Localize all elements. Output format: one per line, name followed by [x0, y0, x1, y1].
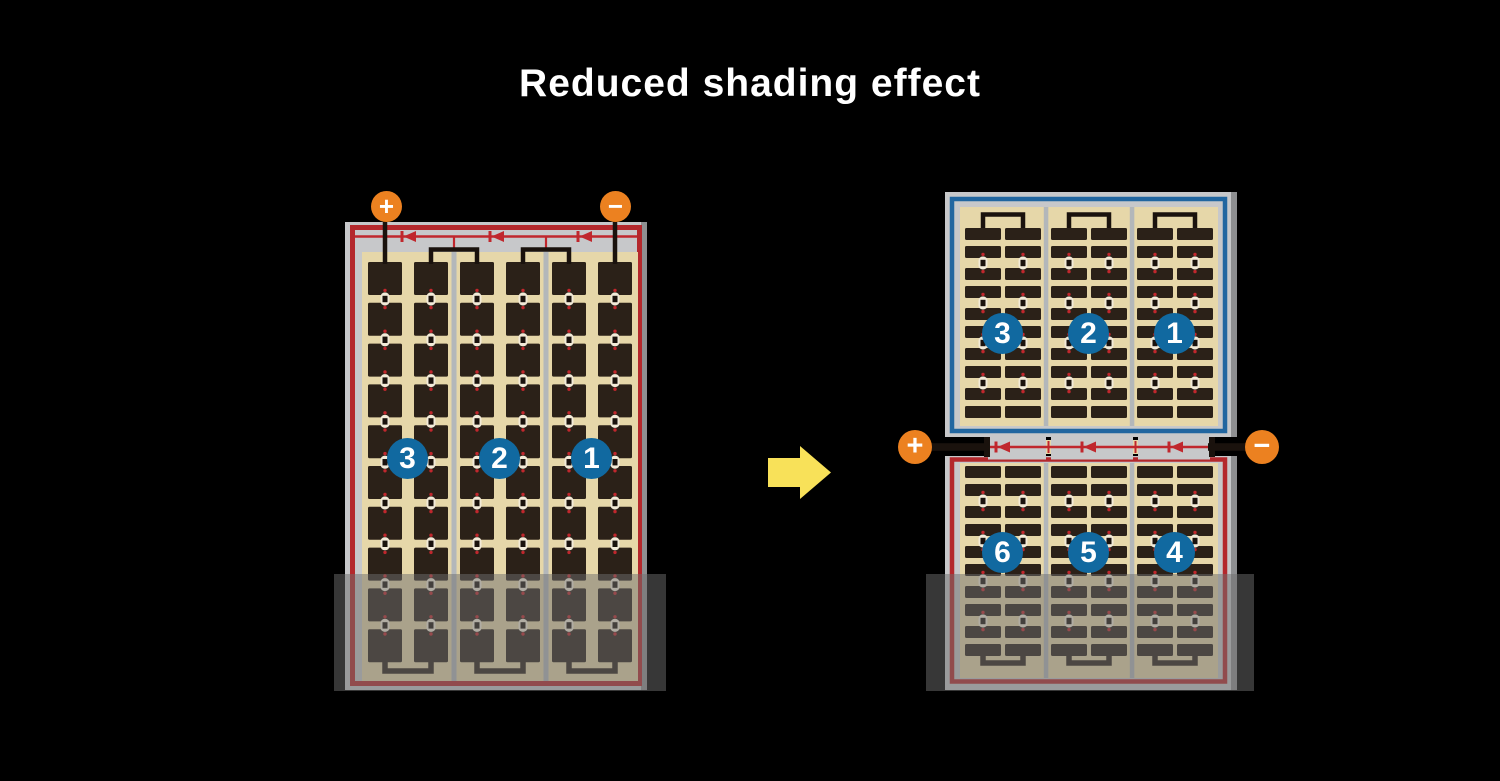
- right-top-string-badge-1: 1: [1154, 313, 1195, 354]
- left-string-badge-3: 3: [387, 438, 428, 479]
- left-string-badge-1: 1: [571, 438, 612, 479]
- left-string-badge-2: 2: [479, 438, 520, 479]
- shading-overlay: [334, 574, 1254, 691]
- right-bottom-string-badge-6: 6: [982, 532, 1023, 573]
- page-title: Reduced shading effect: [0, 62, 1500, 106]
- right-bottom-string-badge-4: 4: [1154, 532, 1195, 573]
- right-panel-diode-strip: [931, 435, 1248, 460]
- right-top-string-badge-2: 2: [1068, 313, 1109, 354]
- shading-effect-diagram: [0, 0, 1500, 781]
- right-positive-terminal: +: [898, 430, 932, 464]
- right-top-string-badge-3: 3: [982, 313, 1023, 354]
- right-bottom-string-badge-5: 5: [1068, 532, 1109, 573]
- left-negative-terminal: −: [600, 191, 631, 222]
- right-negative-terminal: −: [1245, 430, 1279, 464]
- right-arrow-icon: [768, 446, 831, 499]
- diagram-canvas: Reduced shading effect + − 3 2 1 + − 3 2…: [0, 0, 1500, 781]
- left-positive-terminal: +: [371, 191, 402, 222]
